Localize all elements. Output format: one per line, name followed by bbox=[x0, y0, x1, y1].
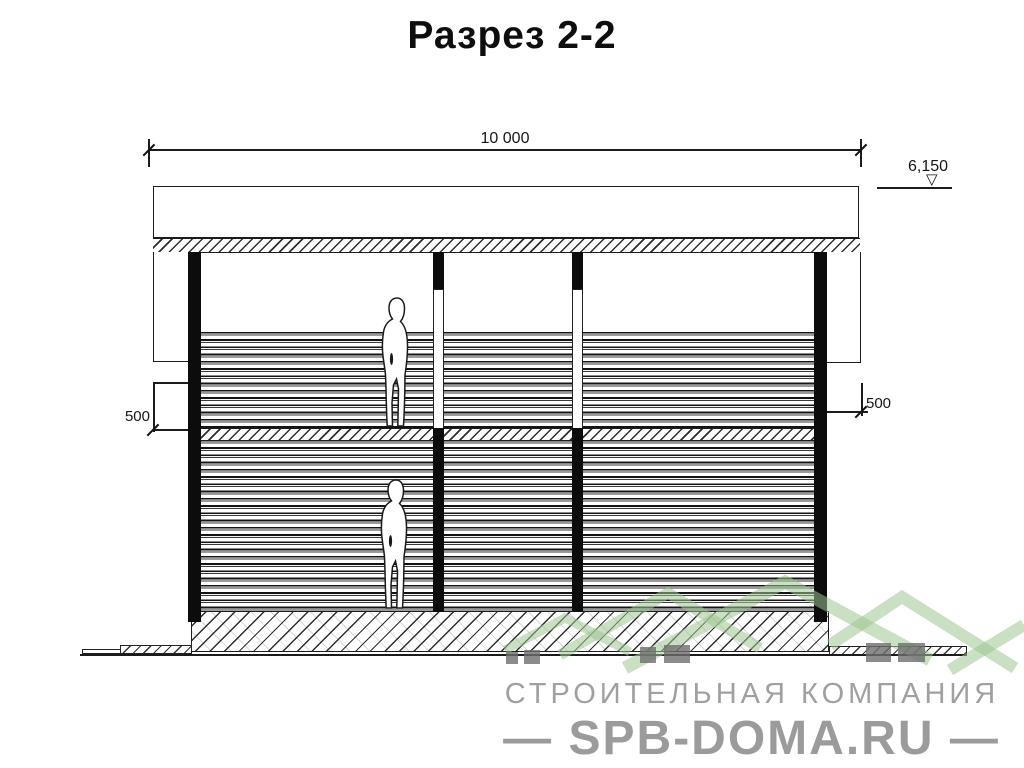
roof-side-box-left bbox=[153, 252, 189, 362]
post-middle-2-lower bbox=[572, 428, 583, 612]
watermark-site-text: — SPB-DOMA.RU — bbox=[440, 711, 1024, 766]
upper-floor-log-wall bbox=[201, 332, 815, 428]
top-dimension-extension-right bbox=[860, 139, 862, 167]
left-eave-offset-label: 500 bbox=[108, 408, 150, 425]
ground-line bbox=[80, 654, 967, 656]
foundation-slab-hatched bbox=[191, 611, 829, 652]
mid-floor-slab-hatched bbox=[201, 428, 815, 441]
hand-gap-detail bbox=[390, 353, 393, 365]
chimney-icon bbox=[524, 650, 540, 664]
left-500-extension-top bbox=[153, 382, 190, 384]
drawing-title: Разрез 2-2 bbox=[0, 14, 1024, 58]
post-right bbox=[814, 252, 827, 622]
right-eave-offset-label: 500 bbox=[866, 395, 891, 412]
roof-fascia-band bbox=[153, 186, 859, 238]
top-dimension-line bbox=[149, 149, 861, 151]
left-500-extension-bottom bbox=[153, 429, 190, 431]
post-left bbox=[188, 252, 201, 622]
hand-gap-detail bbox=[389, 535, 392, 547]
ceiling-slab-hatched bbox=[153, 238, 860, 253]
level-mark-line bbox=[877, 187, 952, 189]
section-drawing-page: Разрез 2-2 10 000 6,150 ▽ 500 500 bbox=[0, 0, 1024, 768]
post-middle-2-column bbox=[572, 289, 583, 429]
lower-floor-log-wall bbox=[201, 440, 815, 611]
roof-chevron-icon bbox=[830, 597, 1015, 668]
ground-step-left bbox=[120, 645, 192, 654]
top-dimension-extension-left bbox=[148, 139, 150, 167]
human-figure-lower bbox=[377, 479, 413, 611]
roof-side-box-right bbox=[825, 252, 861, 363]
post-middle-2-top bbox=[572, 252, 583, 290]
left-500-dimension-line bbox=[153, 382, 155, 432]
overall-width-label: 10 000 bbox=[440, 130, 570, 148]
watermark-company-text: СТРОИТЕЛЬНАЯ КОМПАНИЯ bbox=[455, 678, 1024, 711]
human-figure-upper bbox=[378, 297, 414, 429]
level-mark-icon: ▽ bbox=[926, 172, 938, 187]
post-middle-1-column bbox=[433, 289, 444, 429]
post-middle-1-lower bbox=[433, 428, 444, 612]
post-middle-1-top bbox=[433, 252, 444, 290]
